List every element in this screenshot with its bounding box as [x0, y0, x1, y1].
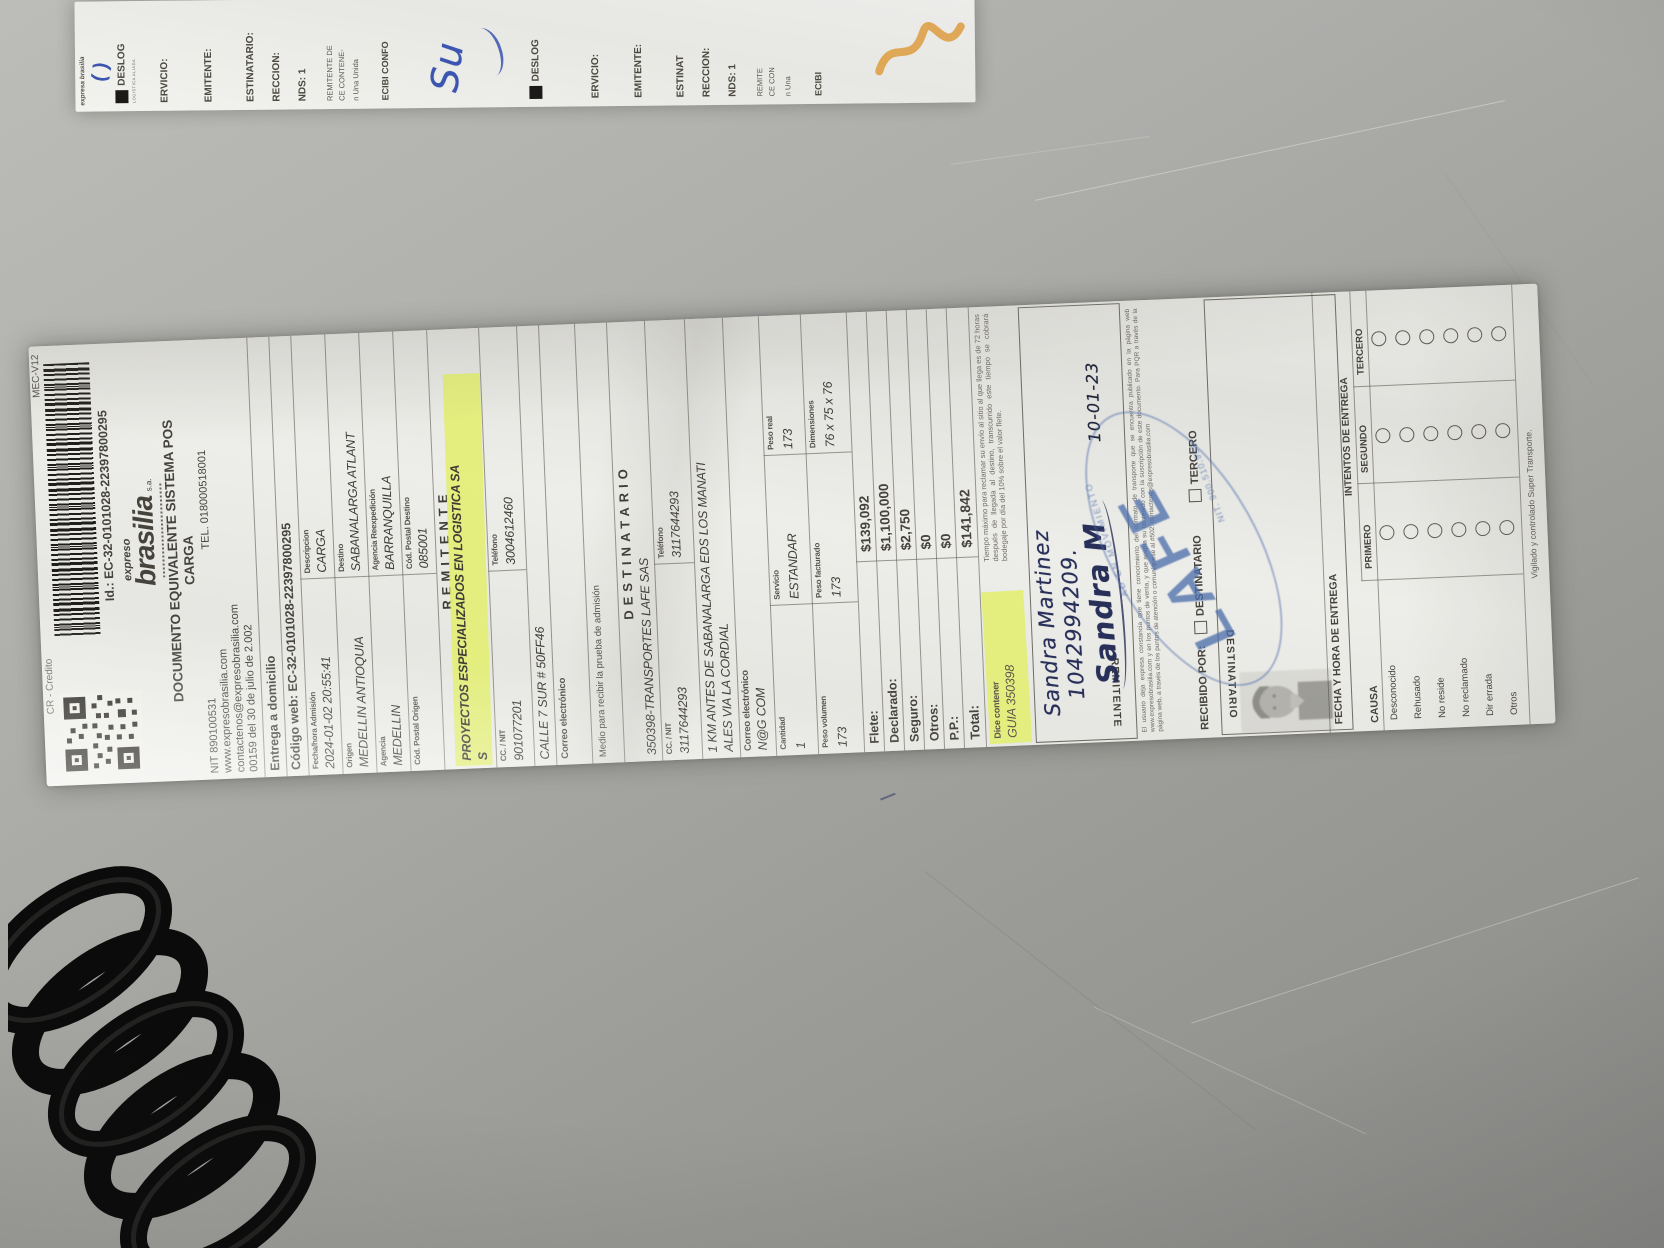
divider: [764, 451, 852, 456]
charge-value: $2,750: [897, 509, 914, 551]
fragment-field: RECCION:: [701, 48, 713, 98]
field-label: CC. / NIT: [664, 723, 674, 755]
field-label: CC. / NIT: [498, 730, 508, 762]
sender-nit: 901077201: [510, 700, 527, 761]
attempt-col-segundo: SEGUNDO: [1358, 425, 1371, 473]
field-label: Medio para recibir la prueba de admisión: [591, 585, 609, 757]
delivery-type: Entrega a domicilio: [264, 655, 283, 771]
field-label: Peso real: [765, 416, 775, 450]
fragment-field: CE CONTENE-: [337, 49, 347, 101]
divider: [800, 314, 819, 754]
desk-scratch: [951, 136, 1149, 165]
field-value: 085001: [415, 528, 431, 569]
field-label: Cód. Postal Origen: [410, 696, 422, 765]
field-label: Teléfono: [490, 534, 500, 565]
real-weight-value: 173: [781, 429, 796, 450]
deslog-logo: DESLOG: [527, 39, 546, 99]
attempt-mark-circle: [1443, 328, 1459, 344]
field-label: Descripcion: [301, 530, 312, 574]
fragment-field: RECCION:: [271, 52, 283, 102]
brand-suffix: s.a.: [144, 478, 154, 491]
recipient-address: 1 KM ANTES DE SABANALARGA EDS LOS MANATI: [694, 462, 720, 753]
charge-label: P.P.:: [947, 716, 962, 741]
attempt-mark-circle: [1447, 425, 1463, 441]
recipient-section-title: DESTINATARIO: [609, 322, 642, 762]
attempt-mark-circle: [1403, 524, 1419, 540]
sender-address: CALLE 7 SUR # 50FF46: [533, 626, 553, 759]
fragment-field: NDS: 1: [297, 68, 308, 101]
cause-label: No reside: [1436, 677, 1449, 718]
field-label: Fecha/hora Admisión: [308, 692, 320, 770]
recipient-email: N@G COM: [753, 687, 770, 750]
cause-label: Desconocido: [1387, 665, 1400, 720]
divider: [1361, 573, 1523, 581]
volume-weight-value: 173: [835, 727, 850, 748]
field-label: Cantidad: [778, 717, 788, 750]
top-receipt-fragment: expresa brasilia ( ) DESLOG LOGISTICA AL…: [74, 0, 975, 112]
recipient-address-2: ALES VIA LA CORDIAL: [717, 623, 736, 752]
fragment-field: n Una: [783, 76, 792, 96]
field-value: BARRANQUILLA: [379, 475, 397, 570]
charge-label: Declarado:: [885, 678, 902, 743]
signature-tail: [466, 24, 509, 81]
total-label: Total:: [966, 705, 982, 740]
attempt-mark-circle: [1491, 326, 1507, 342]
field-label: Destino: [336, 544, 346, 572]
quantity-value: 1: [794, 742, 808, 749]
company-tel: TEL. 018000518001: [196, 450, 212, 550]
service-value: ESTANDAR: [785, 533, 802, 599]
deslog-logo-sub: LOGISTICA ALIADA: [131, 43, 137, 103]
divider: [770, 601, 858, 606]
attempt-mark-circle: [1475, 521, 1491, 537]
field-label: Peso facturado: [812, 543, 823, 598]
cause-label: Dir errada: [1483, 673, 1496, 716]
field-value: 2024-01-02 20:55:41: [319, 656, 338, 769]
fragment-field: EMITENTE:: [633, 44, 645, 98]
desk-scratch: [1191, 877, 1638, 1023]
recipient-nit: 3117644293: [675, 687, 692, 754]
attempt-mark-circle: [1499, 520, 1515, 536]
attempt-mark-circle: [1471, 424, 1487, 440]
charge-label: Seguro:: [906, 695, 922, 743]
fragment-field: ESTINAT: [675, 55, 686, 97]
fragment-field: ESTINATARIO:: [245, 32, 257, 102]
attempt-mark-circle: [1419, 329, 1435, 345]
charge-value: $1,100,000: [876, 483, 894, 551]
divider: [1365, 291, 1384, 731]
attempt-mark-circle: [1395, 330, 1411, 346]
charge-value: $0: [918, 534, 934, 550]
divider: [1353, 380, 1515, 388]
field-label: Agencia: [378, 736, 388, 766]
attempt-mark-circle: [1379, 525, 1395, 541]
fragment-field: CE CON: [767, 67, 776, 96]
fragment-field: EMITENTE:: [203, 48, 215, 102]
pen-mark-on-desk: [876, 783, 895, 800]
attempt-mark-circle: [1427, 523, 1443, 539]
fragment-field: NDS: 1: [727, 64, 738, 97]
attempt-mark-circle: [1399, 427, 1415, 443]
waybill-receipt: CR - Credito MEC-V12 Id.: EC-32-0101028-…: [28, 284, 1555, 787]
field-label: Dimensiones: [806, 400, 817, 448]
pen-doodle: ( ): [88, 61, 114, 83]
billed-weight-value: 173: [829, 577, 844, 598]
field-label: Agencia Reexpedición: [368, 489, 380, 571]
fragment-field: ECIBI CONFO: [380, 41, 391, 100]
charge-value: $0: [938, 533, 954, 549]
fragment-field: n Una Unida: [351, 59, 360, 101]
field-label: Correo electrónico: [740, 670, 754, 751]
qr-code: [59, 690, 144, 775]
desk-scratch: [1094, 1007, 1366, 1135]
fragment-field: ECIBI: [813, 72, 823, 96]
attempt-mark-circle: [1495, 423, 1511, 439]
attempt-mark-circle: [1375, 428, 1391, 444]
sender-name-wrap: S: [476, 752, 490, 761]
field-value: MEDELLIN: [389, 705, 406, 766]
attempt-col-primero: PRIMERO: [1362, 524, 1375, 569]
regulator-footer: Vigilado y controlado Super Transporte.: [1517, 284, 1545, 724]
divider: [654, 562, 694, 565]
attempt-col-tercero: TERCERO: [1354, 328, 1367, 375]
signature-su: Su: [422, 39, 472, 94]
recipient-phone: 3117644293: [667, 491, 684, 558]
field-label: Cód. Postal Destino: [402, 497, 414, 569]
cause-label: Otros: [1508, 691, 1520, 715]
deslog-logo-mark: [530, 86, 543, 99]
dimensions-value: 76 x 75 x 76: [821, 381, 838, 447]
deslog-logo-text: DESLOG: [530, 39, 541, 81]
divider: [574, 324, 593, 764]
total-value: $141,842: [956, 489, 974, 548]
form-code: MEC-V12: [30, 354, 43, 398]
deslog-logo-mark: [116, 90, 129, 103]
barcode: [43, 362, 100, 636]
attempt-mark-circle: [1451, 522, 1467, 538]
field-label: Peso volumen: [819, 696, 830, 748]
field-label: Origen: [344, 743, 354, 768]
brand-name: brasilia: [127, 495, 162, 586]
field-label: Servicio: [771, 570, 781, 600]
desk-scratch: [1035, 100, 1505, 201]
attempt-mark-circle: [1371, 331, 1387, 347]
fragment-field: ERVICIO:: [590, 54, 601, 98]
divider: [1357, 476, 1519, 484]
credit-label: CR - Credito: [44, 658, 57, 714]
attempt-mark-circle: [1423, 426, 1439, 442]
fragment-field: REMITE: [755, 68, 764, 96]
field-value: MEDELLIN ANTIOQUIA: [352, 636, 371, 767]
charge-value: $139,092: [856, 495, 873, 552]
deslog-logo: DESLOG LOGISTICA ALIADA: [113, 43, 137, 103]
charge-label: Otros:: [926, 703, 942, 741]
photo-of-desk: expresa brasilia ( ) DESLOG LOGISTICA AL…: [0, 0, 1664, 1248]
guide-number: GUIA 350398: [1003, 665, 1020, 739]
fragment-field: REMITENTE DE: [325, 45, 335, 101]
fragment-field: ERVICIO:: [159, 58, 170, 102]
field-label: Teléfono: [656, 527, 666, 558]
deslog-logo-text: DESLOG: [116, 43, 127, 85]
desk-scratch: [924, 871, 1256, 1130]
cause-label: Rehusado: [1411, 675, 1424, 719]
charge-label: Flete:: [866, 710, 881, 744]
cause-label: No reclamado: [1459, 658, 1472, 718]
divider: [926, 309, 945, 749]
sender-phone: 3004612460: [501, 497, 518, 565]
orange-marker-scribble: [875, 8, 968, 79]
fragment-brand: expresa brasilia: [79, 56, 87, 105]
field-value: SABANALARGA ATLANT: [343, 432, 363, 572]
field-label: Correo electrónico: [557, 678, 571, 759]
causa-header: CAUSA: [1368, 685, 1382, 723]
attempt-mark-circle: [1467, 327, 1483, 343]
coiled-phone-cord: [8, 866, 352, 1248]
brand-logo: expreso brasilia s.a.: [118, 478, 165, 587]
field-value: CARGA: [313, 529, 329, 573]
divider: [488, 569, 526, 572]
